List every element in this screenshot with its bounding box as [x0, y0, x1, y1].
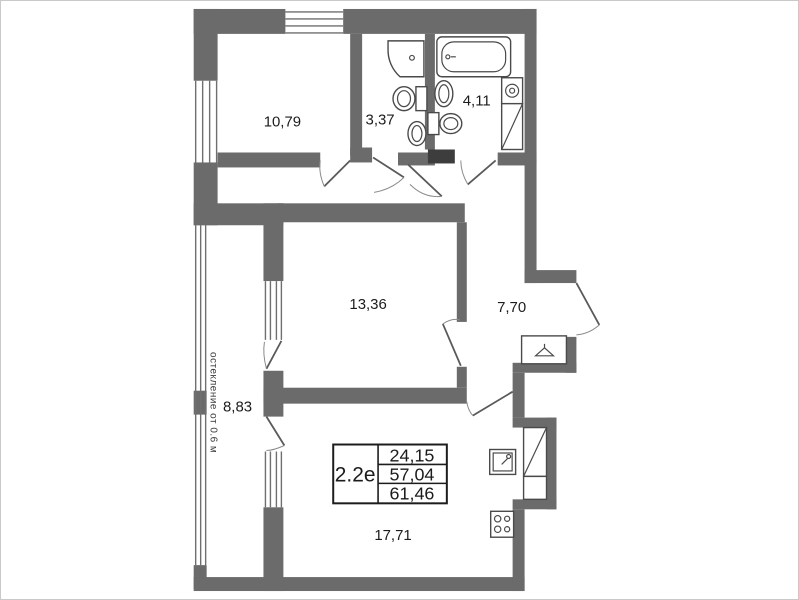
glazing-note: остекление от 0.6 м	[208, 352, 219, 453]
wall	[525, 270, 577, 283]
window-kitchen-balcony	[265, 451, 281, 507]
room-area-hallway: 7,70	[497, 299, 526, 316]
floor-plan-svg: 10,79 3,37 4,11 13,36 7,70 8,83 17,71 ос…	[1, 1, 798, 599]
door-bedroom	[320, 160, 350, 186]
toilet-2-icon	[428, 113, 462, 135]
bathtub-icon	[437, 37, 511, 77]
wall	[513, 373, 525, 418]
doors	[264, 157, 600, 450]
wall	[513, 499, 557, 509]
wall	[350, 34, 362, 156]
wall	[263, 388, 466, 404]
wall	[350, 148, 372, 163]
door-kitchen-balcony	[266, 417, 284, 451]
washbasin-icon	[408, 122, 426, 146]
sink-icon	[435, 81, 453, 107]
floor-plan-image: 10,79 3,37 4,11 13,36 7,70 8,83 17,71 ос…	[0, 0, 799, 600]
wall	[277, 203, 464, 222]
wall-stub	[428, 150, 455, 164]
wall	[547, 418, 557, 510]
windows	[196, 12, 344, 565]
apartment-info-table: 2.2е 24,15 57,04 61,46	[333, 445, 447, 504]
shower-tray-icon	[388, 41, 424, 77]
room-area-bedroom: 10,79	[264, 114, 301, 131]
wall	[457, 222, 467, 322]
wall	[457, 367, 467, 388]
wall	[525, 9, 537, 283]
area-value-3: 61,46	[390, 483, 435, 503]
shaft-icon	[524, 428, 547, 500]
door-living-room	[443, 319, 461, 365]
door-living-balcony	[264, 341, 282, 369]
stove-icon	[491, 511, 514, 537]
door-bathroom	[461, 160, 496, 184]
washing-machine-icon	[502, 78, 523, 104]
area-value-2: 57,04	[390, 464, 435, 484]
wall	[194, 9, 218, 81]
room-area-shower-room: 3,37	[366, 112, 395, 129]
room-area-living-room: 13,36	[349, 296, 386, 313]
wall	[263, 507, 283, 591]
wardrobe-icon	[522, 336, 567, 364]
door-corridor	[408, 164, 442, 196]
window-top	[285, 12, 343, 33]
wall	[513, 509, 525, 591]
wall	[343, 9, 536, 34]
door-kitchen	[467, 392, 513, 416]
area-value-1: 24,15	[390, 445, 435, 465]
wall	[218, 152, 321, 167]
room-area-kitchen-living: 17,71	[374, 527, 411, 544]
room-area-balcony: 8,83	[223, 399, 252, 416]
room-area-bathroom: 4,11	[463, 93, 491, 110]
duct-icon	[502, 104, 523, 150]
plan-type-label: 2.2е	[335, 463, 376, 486]
window-left-bedroom	[196, 81, 217, 163]
toilet-icon	[393, 87, 427, 111]
window-living-balcony	[265, 281, 281, 340]
wall	[194, 577, 525, 591]
door-entrance	[576, 283, 599, 335]
kitchen-sink-icon	[490, 450, 516, 475]
